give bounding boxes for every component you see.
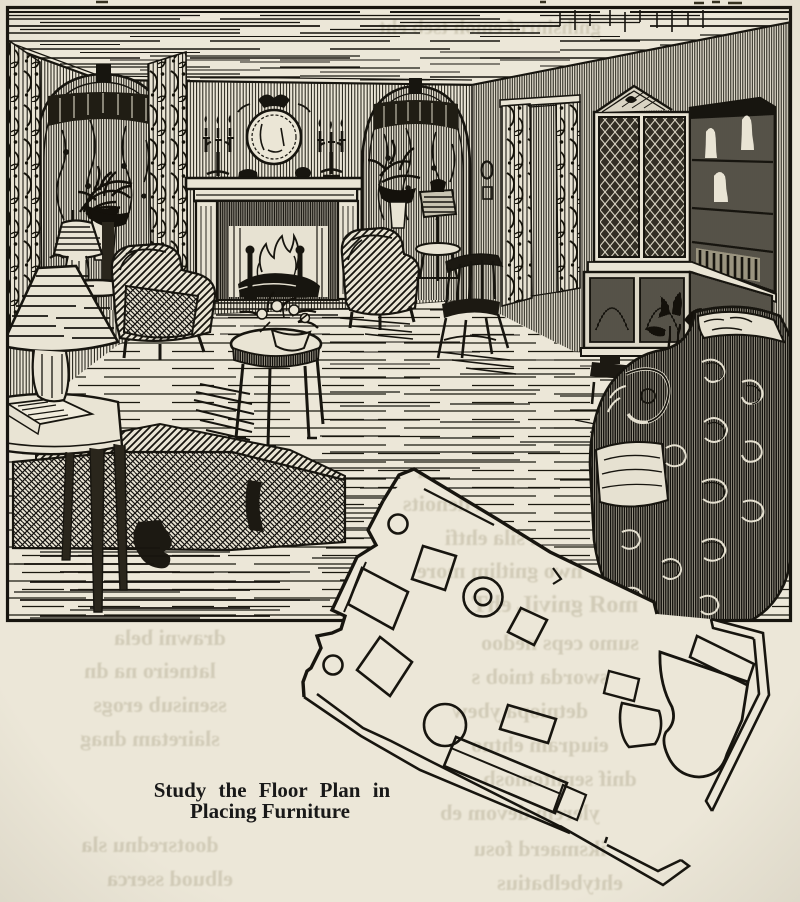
svg-text:ssenisub erogs: ssenisub erogs — [93, 692, 227, 717]
svg-text:sumo ceps nedoo: sumo ceps nedoo — [481, 630, 639, 655]
svg-text:Placing Furniture: Placing Furniture — [190, 799, 350, 823]
svg-text:dnif semitemosb: dnif semitemosb — [483, 766, 636, 791]
svg-text:moЯ gniviL ehT: moЯ gniviL ehT — [472, 592, 639, 618]
svg-text:drawni bela: drawni bela — [114, 625, 226, 650]
svg-text:slairetam dnag: slairetam dnag — [80, 726, 220, 751]
svg-text:dootsrednu sla: dootsrednu sla — [81, 832, 218, 857]
svg-text:elbuod sserca: elbuod sserca — [107, 866, 233, 891]
svg-text:nwo gnitlim more: nwo gnitlim more — [417, 558, 583, 583]
svg-text:sworda tniob s: sworda tniob s — [471, 664, 608, 689]
svg-text:detniopa ybew: detniopa ybew — [452, 698, 588, 723]
svg-text:latneiro na dn: latneiro na dn — [84, 658, 216, 683]
svg-text:ehtybelbatius: ehtybelbatius — [497, 870, 623, 895]
